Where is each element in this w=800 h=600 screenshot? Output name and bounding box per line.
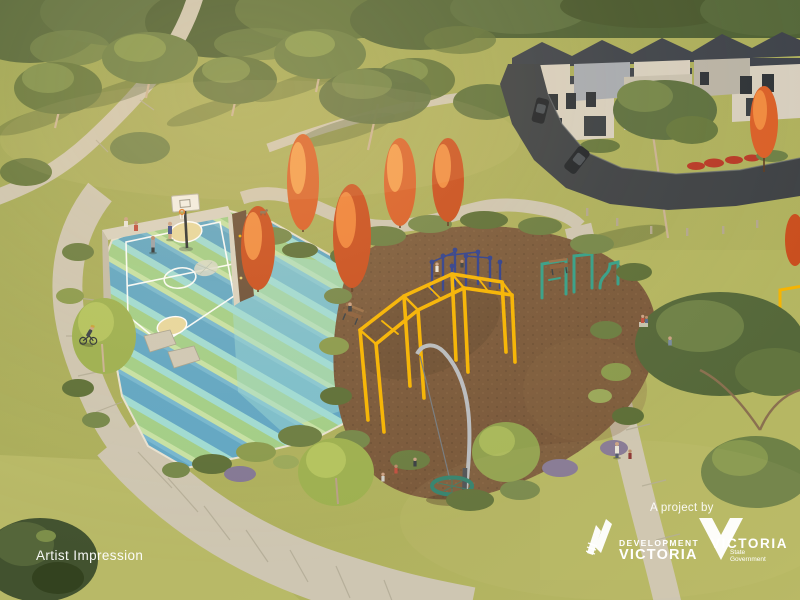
artist-impression-render: Artist Impression A project by DEVELOPME… — [0, 0, 800, 600]
victoria-gov-line2: State — [730, 549, 766, 556]
development-victoria-line2: VICTORIA — [619, 547, 698, 563]
victoria-state-government-logo: VICTORIA State Government — [697, 516, 797, 578]
development-victoria-logo: DEVELOPMENT VICTORIA — [586, 517, 711, 572]
caption-artist-impression: Artist Impression — [36, 548, 143, 563]
victoria-gov-line3: Government — [730, 556, 766, 563]
development-victoria-icon — [586, 517, 616, 557]
victoria-gov-line23: State Government — [730, 549, 766, 563]
credit-prefix: A project by — [650, 502, 714, 514]
